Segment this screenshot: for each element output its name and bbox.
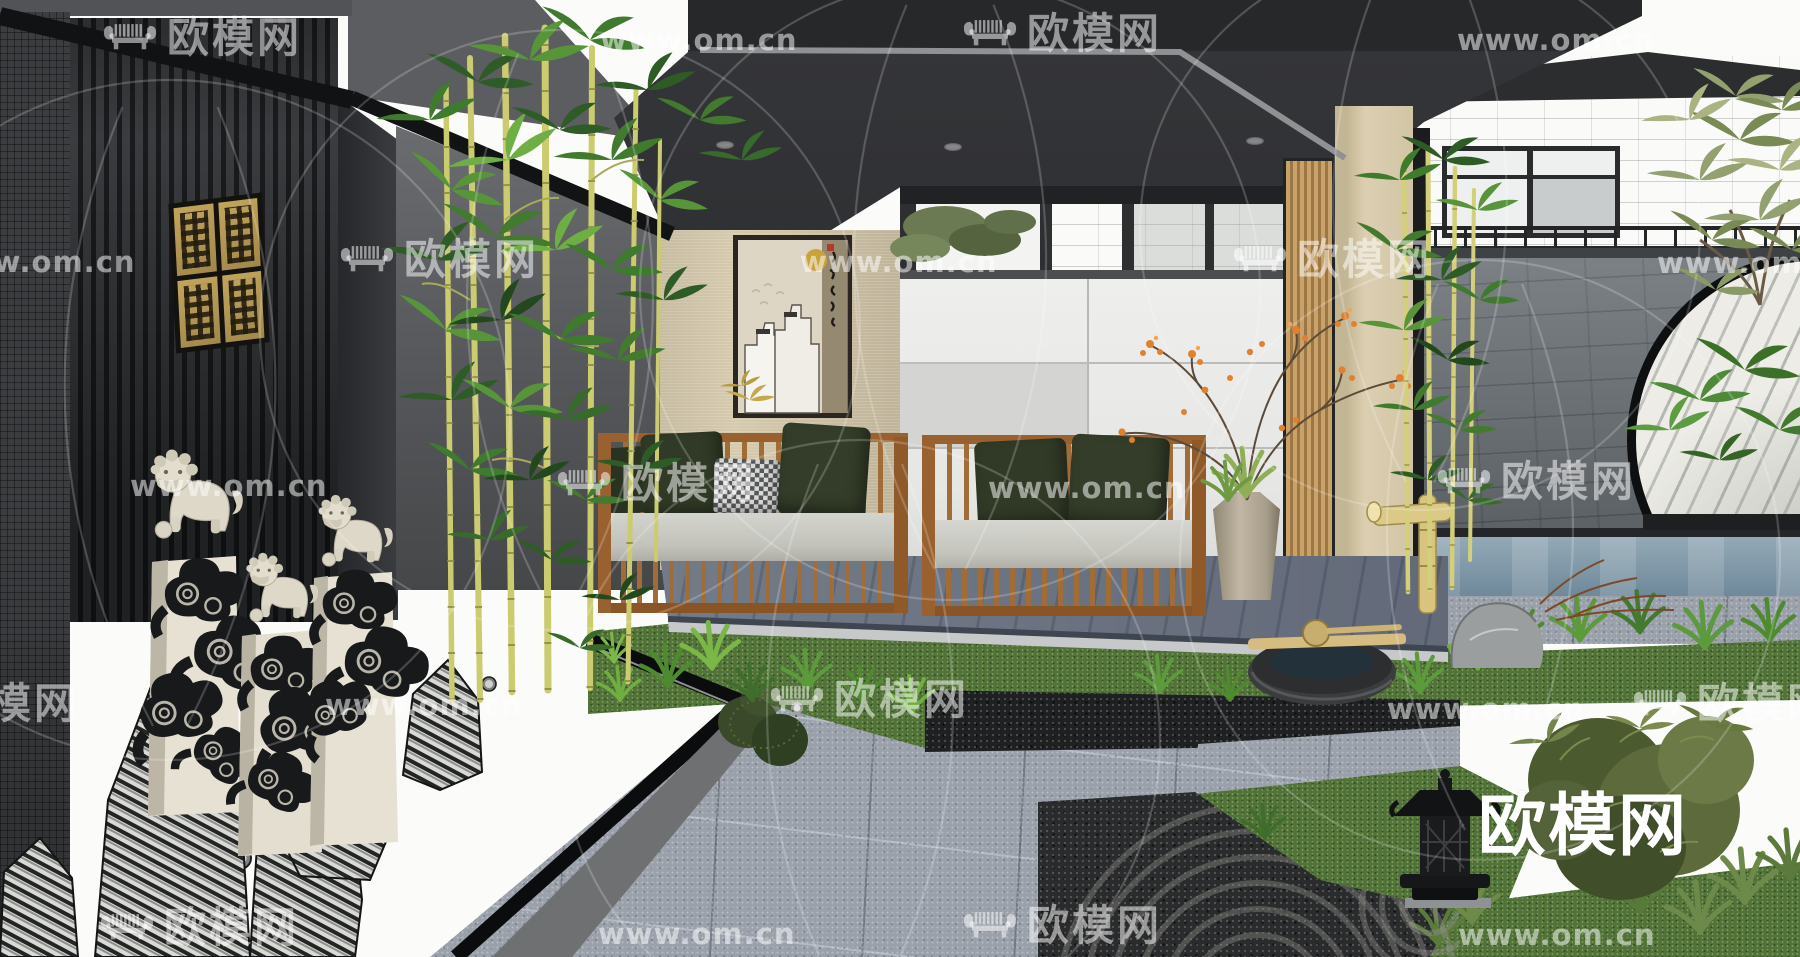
ceiling-light — [716, 141, 734, 149]
panel-seam-h — [900, 362, 1283, 364]
ceiling-light — [944, 143, 962, 151]
sofa-arm — [922, 440, 935, 616]
clerestory-post — [1205, 204, 1214, 272]
clerestory-post — [1040, 204, 1052, 272]
sofa-arm — [894, 437, 908, 613]
clerestory-post — [900, 204, 916, 272]
left-wall-junction — [338, 96, 398, 620]
stone-vase — [1213, 492, 1280, 600]
moon-gate-opening — [1627, 252, 1800, 534]
background-window — [1442, 146, 1620, 238]
sofa-arm — [598, 437, 611, 613]
right-stone-strip — [1424, 596, 1800, 644]
pond-water — [1424, 537, 1800, 605]
clerestory-sill — [900, 270, 1283, 279]
pond-edge — [1424, 528, 1800, 537]
sofa-pillow — [974, 438, 1070, 529]
ceiling-light — [1246, 137, 1264, 145]
window-glass-shade — [1533, 179, 1615, 233]
plaque-cell — [222, 270, 265, 342]
sofa-skirt-spindles — [605, 561, 901, 609]
clerestory-post — [1122, 204, 1134, 272]
sofa-cushion — [925, 520, 1203, 568]
sofa-pillow-checkered — [713, 458, 781, 516]
sofa-pillow — [1068, 433, 1171, 530]
sofa-cushion — [600, 513, 905, 561]
sofa-left — [598, 395, 908, 617]
wall-painting — [733, 235, 852, 418]
seal-script-plaque — [168, 192, 269, 353]
courtyard-render: 欧模网www.om.cn欧模网www.om.cnwww.om.cn欧模网www.… — [0, 0, 1800, 957]
plaque-cell — [177, 276, 220, 348]
sofa-pillow — [777, 422, 871, 520]
plaque-cell — [218, 198, 261, 270]
sofa-right — [922, 400, 1206, 620]
moon-wall-coping — [1424, 246, 1800, 258]
moon-gate-wall — [1424, 252, 1800, 534]
sofa-bottom-rail — [922, 606, 1206, 616]
sofa-arm — [1192, 440, 1206, 616]
sofa-bottom-rail — [598, 603, 908, 613]
wood-slat-door — [1283, 158, 1335, 570]
beige-pillar — [1335, 106, 1413, 564]
clerestory-beam — [900, 186, 1283, 204]
plaque-cell — [174, 203, 217, 275]
left-tile-wall — [0, 12, 70, 957]
